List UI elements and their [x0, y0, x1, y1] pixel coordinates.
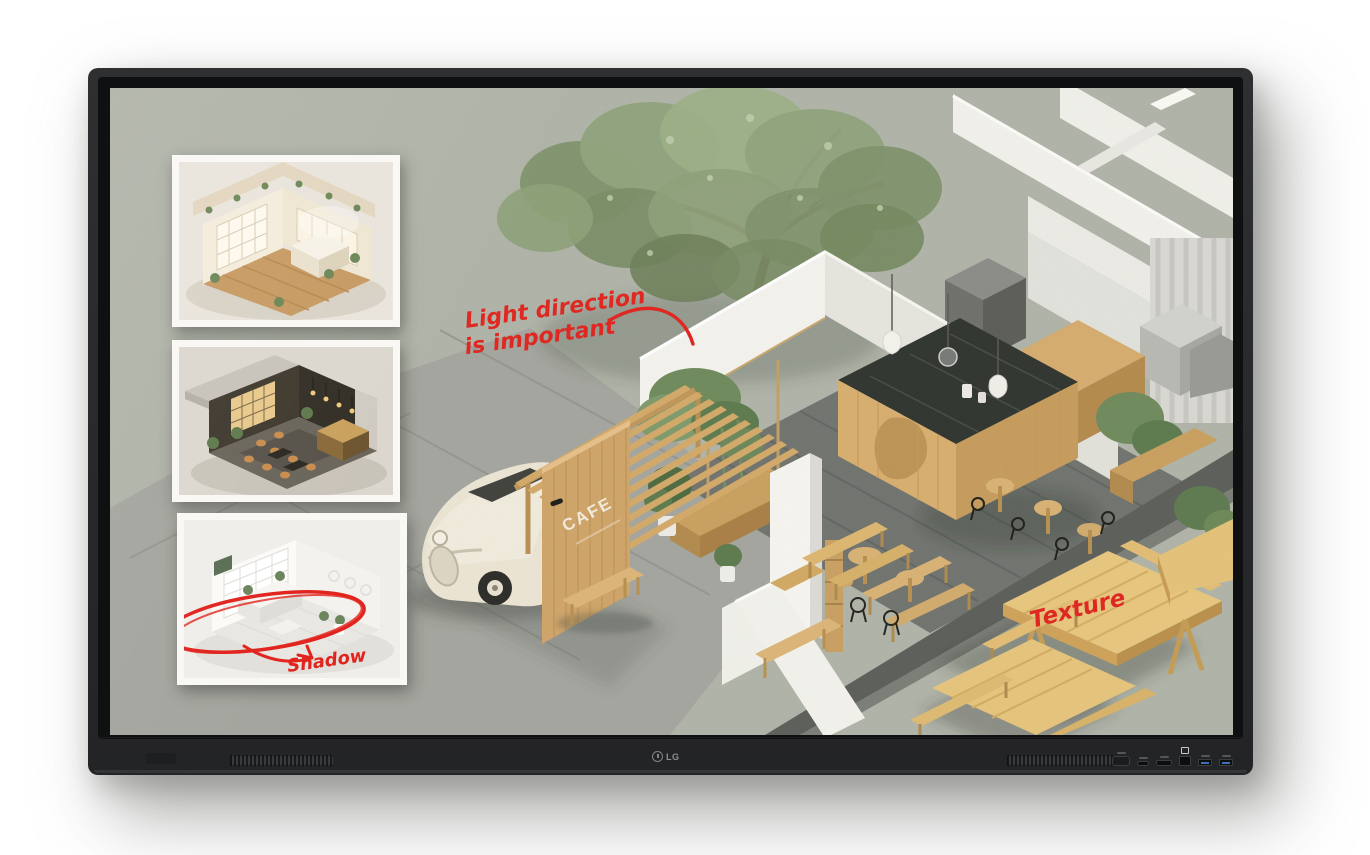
power-button: [1112, 756, 1130, 766]
usb-a-port-icon: [1198, 759, 1212, 766]
lg-symbol-icon: [652, 751, 663, 762]
speaker-grille-right: [1007, 755, 1113, 766]
display-frame: CAFE: [88, 68, 1253, 775]
speaker-grille-left: [230, 755, 334, 766]
touch-usb-icon: [1181, 747, 1189, 754]
usb-a-port-icon: [1219, 759, 1233, 766]
ir-sensor: [146, 753, 176, 764]
hdmi-port-icon: [1156, 760, 1172, 766]
thumbnail-white-interior[interactable]: Shadow: [177, 513, 407, 685]
port-cluster: [1112, 747, 1233, 766]
bottom-bezel: LG: [98, 737, 1243, 767]
touch-usb-port-icon: [1179, 756, 1191, 766]
lg-logo-text: LG: [666, 752, 680, 762]
thumbnail-dark-restaurant[interactable]: [172, 340, 400, 502]
thumbnail-warm-cafe[interactable]: [172, 155, 400, 327]
usb-c-port-icon: [1137, 761, 1149, 766]
touch-screen[interactable]: CAFE: [110, 88, 1233, 735]
lg-logo: LG: [652, 751, 680, 762]
stage: CAFE: [0, 0, 1370, 855]
